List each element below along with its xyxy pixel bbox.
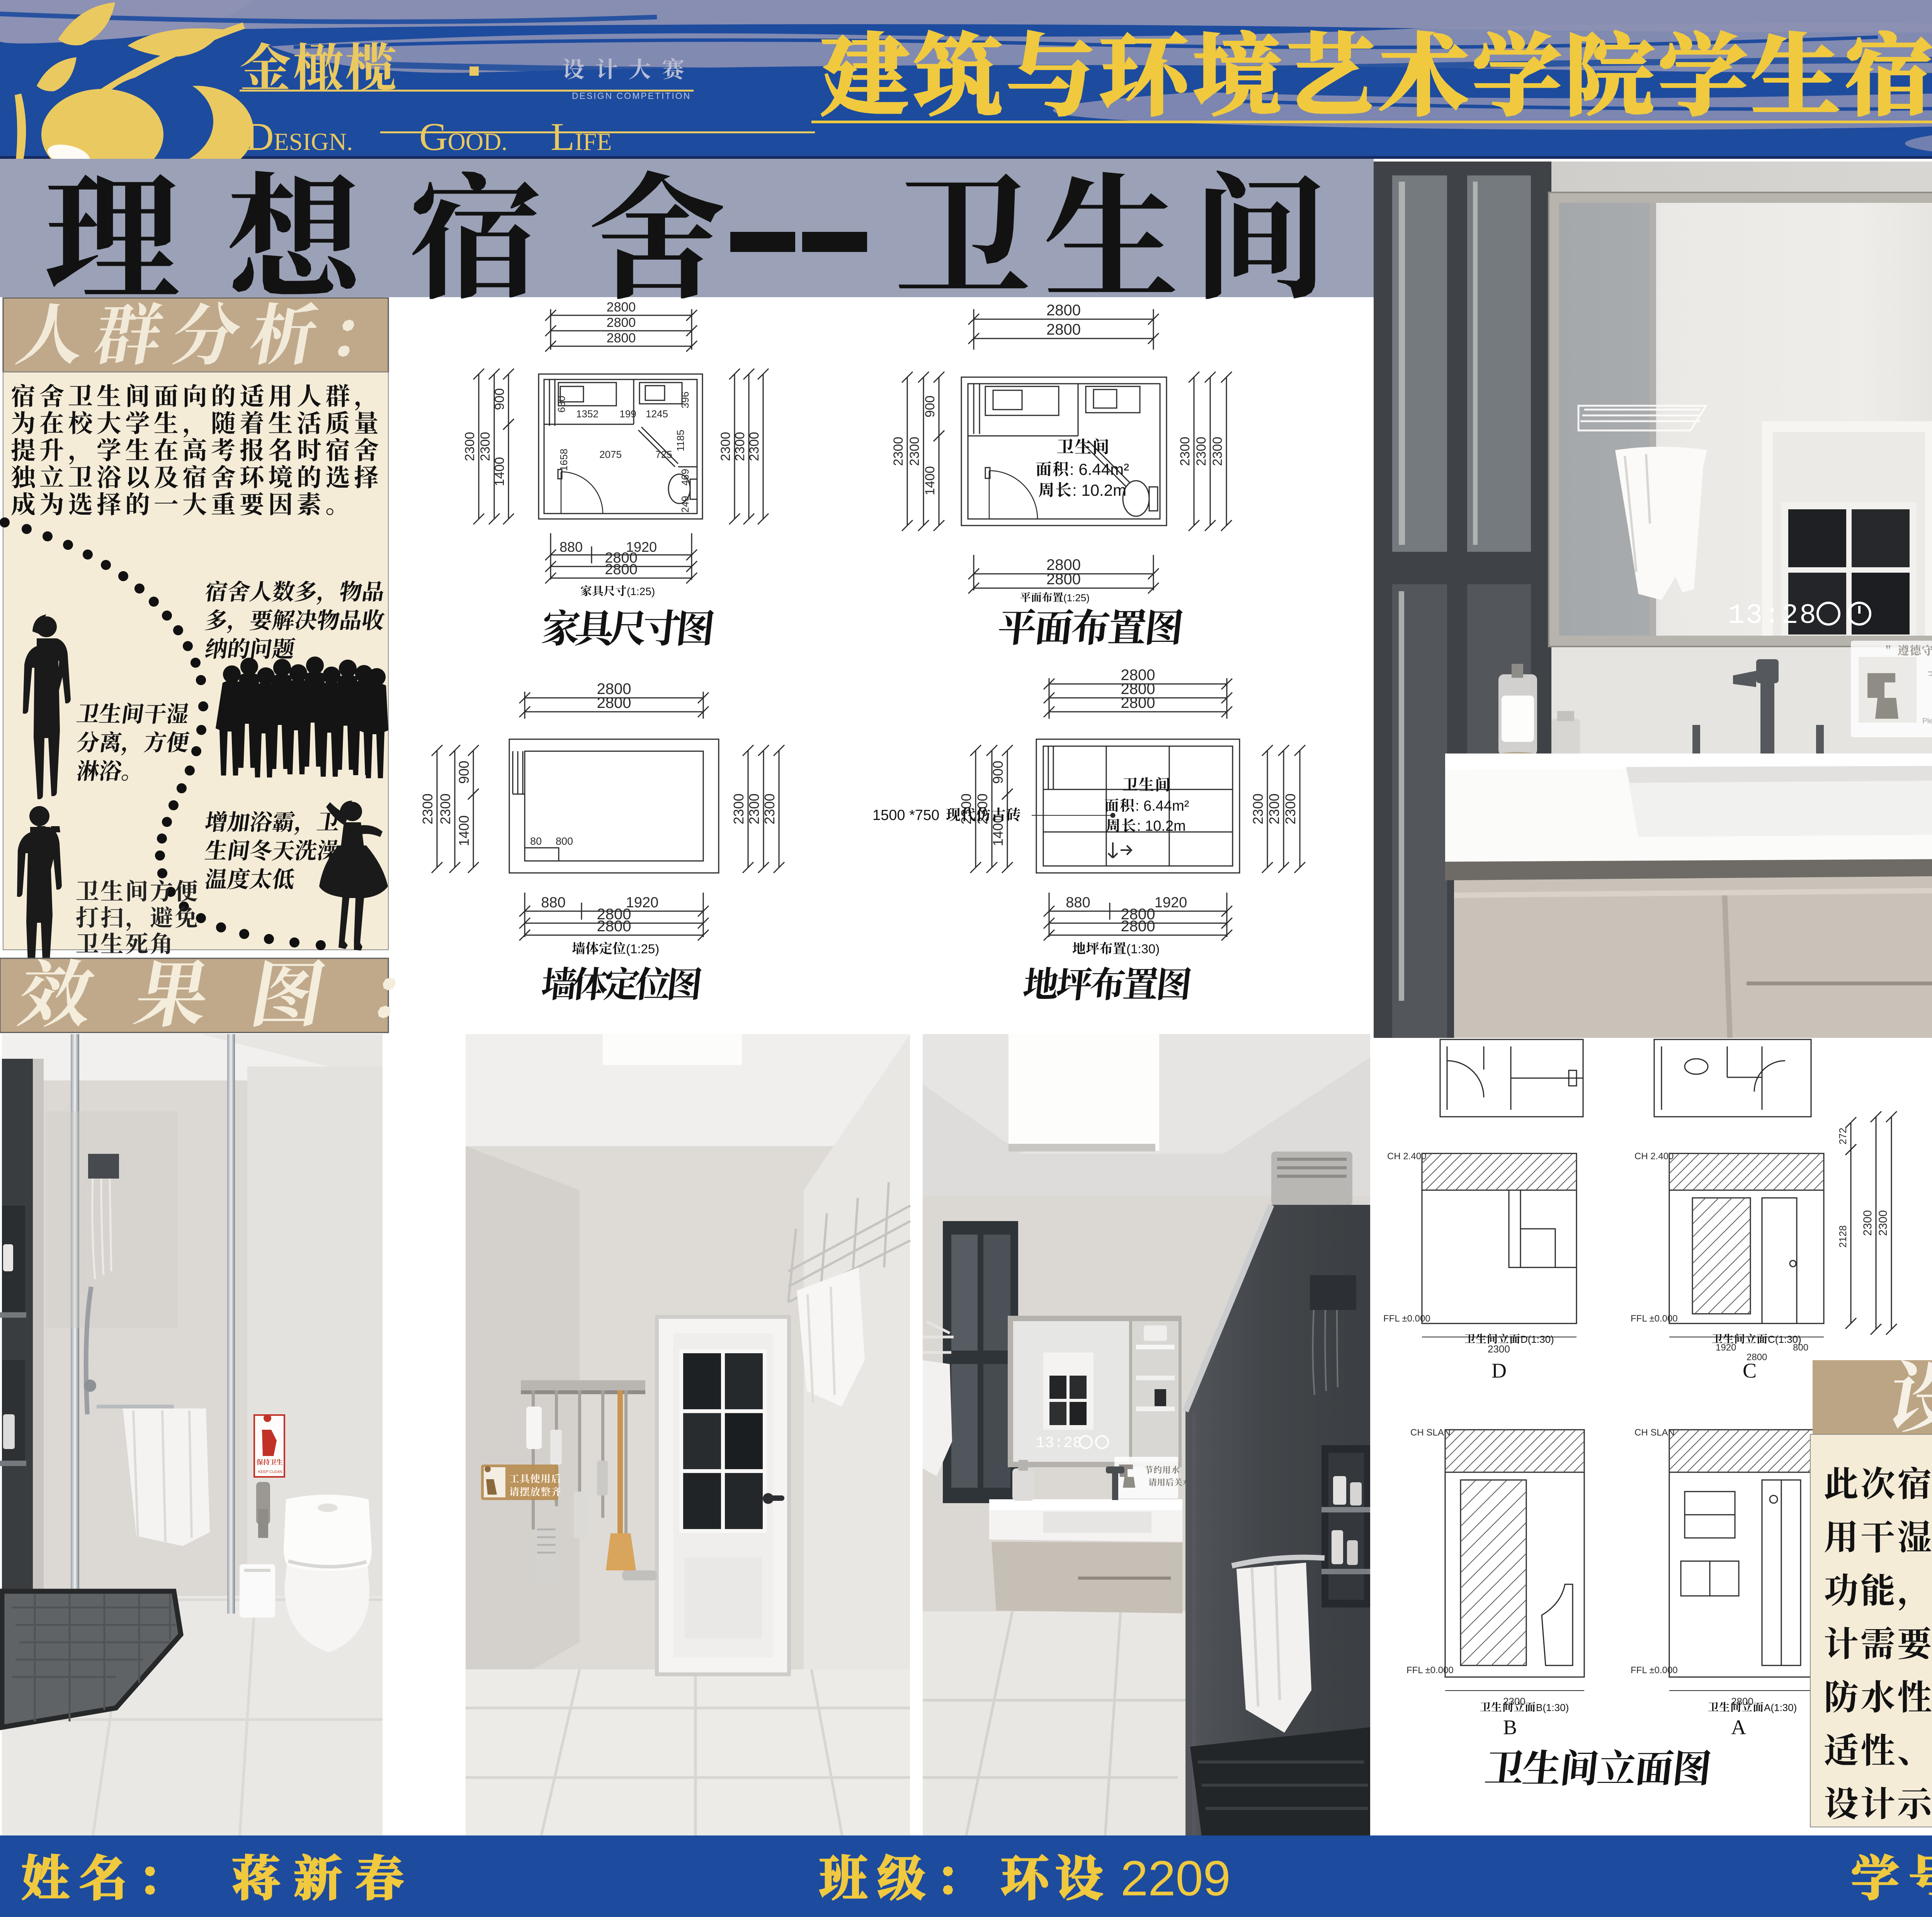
svg-text:800: 800 <box>556 835 573 847</box>
svg-text:2800: 2800 <box>607 300 636 315</box>
svg-text:2300: 2300 <box>1250 793 1266 824</box>
svg-text:2300: 2300 <box>1178 437 1192 466</box>
svg-text:2300: 2300 <box>1488 1343 1510 1355</box>
svg-text:1920: 1920 <box>1716 1342 1736 1353</box>
svg-text:FFL ±0.000: FFL ±0.000 <box>1383 1313 1430 1324</box>
svg-text:1400: 1400 <box>990 815 1006 846</box>
svg-text:2300: 2300 <box>958 793 974 824</box>
svg-text:1400: 1400 <box>923 466 937 495</box>
svg-text:2300: 2300 <box>718 432 733 461</box>
svg-text:13:28: 13:28 <box>1036 1435 1082 1452</box>
svg-text:900: 900 <box>456 760 472 784</box>
svg-text:(1:25): (1:25) <box>626 942 659 956</box>
svg-text:2800: 2800 <box>1121 694 1155 711</box>
svg-text:2300: 2300 <box>463 432 477 461</box>
svg-text:2300: 2300 <box>733 432 747 461</box>
svg-text:2075: 2075 <box>599 449 622 460</box>
svg-text:DESIGN COMPETITION: DESIGN COMPETITION <box>572 91 691 101</box>
svg-text:2300: 2300 <box>1861 1210 1874 1236</box>
svg-text:2300: 2300 <box>731 793 747 824</box>
svg-text:80: 80 <box>530 835 542 847</box>
svg-text:FFL ±0.000: FFL ±0.000 <box>1406 1665 1454 1675</box>
svg-text:2209: 2209 <box>1121 1851 1231 1906</box>
svg-text:2300: 2300 <box>420 793 435 824</box>
svg-text:A: A <box>1731 1716 1746 1739</box>
svg-text:: 10.2m: : 10.2m <box>1137 818 1186 834</box>
svg-text:B(1:30): B(1:30) <box>1536 1702 1569 1713</box>
svg-text:2800: 2800 <box>597 918 631 935</box>
svg-text:2300: 2300 <box>747 432 762 461</box>
svg-text:900: 900 <box>923 396 937 418</box>
svg-text:900: 900 <box>492 388 507 410</box>
svg-text:2300: 2300 <box>1210 437 1225 466</box>
svg-text:D(1:30): D(1:30) <box>1520 1334 1554 1345</box>
svg-text:469: 469 <box>679 469 691 485</box>
svg-text:FFL ±0.000: FFL ±0.000 <box>1631 1313 1678 1324</box>
svg-text:2128: 2128 <box>1837 1225 1849 1248</box>
svg-text:2300: 2300 <box>437 793 453 824</box>
svg-text:1500 *750: 1500 *750 <box>872 807 939 823</box>
svg-text:725: 725 <box>655 449 672 460</box>
svg-text:D: D <box>1492 1359 1507 1382</box>
svg-text:1658: 1658 <box>558 449 570 471</box>
svg-text:880: 880 <box>1066 895 1090 911</box>
svg-text:FFL ±0.000: FFL ±0.000 <box>1631 1665 1678 1675</box>
svg-text:2300: 2300 <box>1282 793 1298 824</box>
svg-text:CH 2.400: CH 2.400 <box>1387 1151 1426 1162</box>
svg-text:A(1:30): A(1:30) <box>1764 1702 1797 1713</box>
svg-text:CH SLAN: CH SLAN <box>1410 1427 1451 1438</box>
svg-text:1352: 1352 <box>576 408 599 420</box>
svg-text:1400: 1400 <box>492 457 507 486</box>
svg-text:2800: 2800 <box>605 561 638 578</box>
svg-text:1400: 1400 <box>456 815 472 846</box>
svg-text:2300: 2300 <box>1877 1210 1889 1236</box>
svg-text:2800: 2800 <box>1121 918 1155 935</box>
svg-text:(1:30): (1:30) <box>1126 942 1160 956</box>
svg-text:2800: 2800 <box>607 331 636 345</box>
svg-text:199: 199 <box>619 408 636 420</box>
svg-text:249: 249 <box>679 496 691 512</box>
svg-text:(1:25): (1:25) <box>1063 592 1090 604</box>
svg-text:900: 900 <box>990 760 1006 784</box>
svg-text:13:28: 13:28 <box>1728 600 1817 631</box>
svg-text:880: 880 <box>560 539 583 555</box>
svg-text:2300: 2300 <box>891 437 906 466</box>
svg-text:630: 630 <box>556 396 567 412</box>
svg-text:2800: 2800 <box>597 694 631 711</box>
svg-text:2800: 2800 <box>607 315 636 330</box>
svg-text:880: 880 <box>541 895 565 911</box>
svg-text:2300: 2300 <box>762 793 777 824</box>
svg-text:2800: 2800 <box>1046 571 1081 588</box>
svg-text:2800: 2800 <box>1046 302 1081 319</box>
svg-text:272: 272 <box>1837 1128 1849 1144</box>
svg-text:Please use water after saving: Please use water after saving water <box>1922 717 1932 725</box>
svg-text:396: 396 <box>679 391 691 408</box>
svg-text:2300: 2300 <box>1194 437 1209 466</box>
svg-text:: 6.44m²: : 6.44m² <box>1135 798 1189 814</box>
svg-text:2800: 2800 <box>1046 321 1081 338</box>
svg-text:C(1:30): C(1:30) <box>1768 1334 1801 1345</box>
svg-text:KEEP CLEAN: KEEP CLEAN <box>258 1470 282 1474</box>
svg-text:2300: 2300 <box>907 437 922 466</box>
svg-text:1245: 1245 <box>646 408 668 420</box>
svg-text:CH SLAN: CH SLAN <box>1634 1427 1675 1438</box>
svg-text:C: C <box>1743 1359 1757 1382</box>
svg-text:2300: 2300 <box>746 793 762 824</box>
svg-text:1920: 1920 <box>1155 895 1187 911</box>
svg-text:B: B <box>1503 1716 1517 1739</box>
svg-text:: 10.2m: : 10.2m <box>1072 481 1126 499</box>
svg-text:2300: 2300 <box>1266 793 1282 824</box>
svg-text:(1:25): (1:25) <box>627 585 655 597</box>
svg-text:2300: 2300 <box>478 432 493 461</box>
svg-text:: 6.44m²: : 6.44m² <box>1070 460 1129 478</box>
svg-text:1185: 1185 <box>675 430 686 451</box>
svg-text:CH 2.400: CH 2.400 <box>1634 1151 1673 1162</box>
